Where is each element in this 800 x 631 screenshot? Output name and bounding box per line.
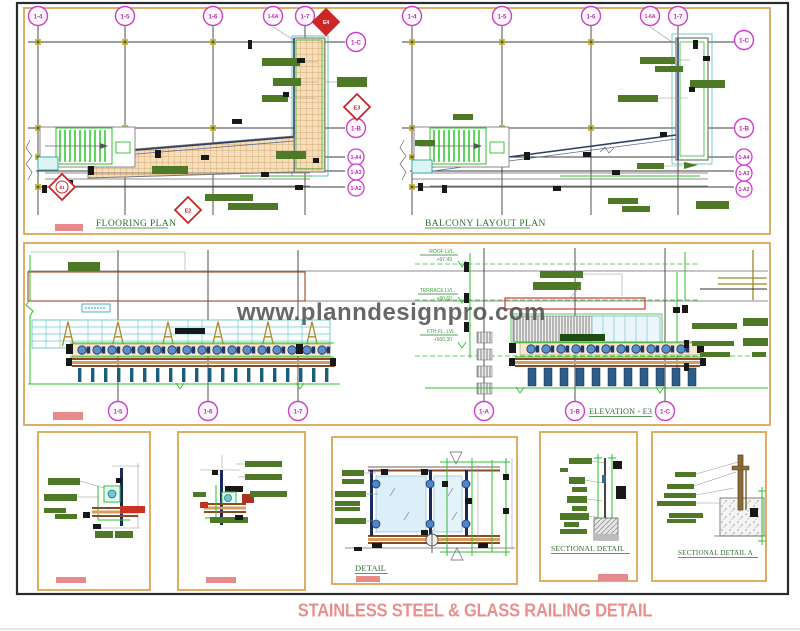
svg-text:1-6: 1-6 — [204, 408, 214, 415]
detail-panel-4: SECTIONAL DETAIL — [551, 454, 630, 581]
svg-text:+600.30: +600.30 — [434, 337, 452, 343]
balcony-layout-plan: 1-4 1-5 1-6 1-6A 1-7 1-C 1-B 1-A4 1-A3 1… — [400, 7, 754, 230]
grid-bubbles-top: 1-4 1-5 1-6 1-6A 1-7 — [29, 7, 315, 26]
svg-text:E1: E1 — [59, 185, 65, 190]
svg-text:E4: E4 — [323, 20, 329, 26]
grid-bubble-label: 1-4 — [34, 13, 44, 20]
sectional-detail-title: SECTIONAL DETAIL — [551, 544, 625, 553]
svg-text:1-6: 1-6 — [587, 13, 597, 20]
flooring-plan: 1-4 1-5 1-6 1-6A 1-7 E4 1-C 1-B 1-A4 1-A… — [26, 7, 370, 232]
elevation-drawing: ROOF LVL. +97.49 TERRACE LVL. +90.60 6TH… — [26, 248, 768, 421]
svg-text:+97.49: +97.49 — [437, 257, 453, 263]
detail-panel-2 — [193, 455, 287, 583]
grid-bubbles-top: 1-4 1-5 1-6 1-6A 1-7 — [403, 7, 688, 26]
svg-text:1-6A: 1-6A — [645, 14, 656, 20]
svg-text:1-7: 1-7 — [674, 13, 684, 20]
flooring-plan-title: FLOORING PLAN — [96, 219, 176, 229]
svg-text:1-C: 1-C — [351, 39, 362, 46]
scale-block — [356, 576, 380, 582]
elevation-marker-e3: E3 — [344, 94, 370, 120]
elevation-marker-e1: E1 — [49, 174, 75, 200]
cad-drawing-canvas: 1-4 1-5 1-6 1-6A 1-7 E4 1-C 1-B 1-A4 1-A… — [0, 0, 800, 631]
svg-text:1-C: 1-C — [660, 408, 671, 415]
elevation-bubbles: 1-5 1-6 1-7 1-A 1-B 1-C ELEVATION - E3 — [109, 402, 675, 421]
svg-text:1-4: 1-4 — [408, 13, 418, 20]
detail-caption-smudge — [56, 577, 86, 583]
detail-title: DETAIL — [355, 563, 386, 573]
svg-text:1-A: 1-A — [479, 408, 490, 415]
elevation-title: ELEVATION - E3 — [589, 407, 652, 416]
elevation-marker-e2: E2 — [175, 197, 201, 223]
svg-text:6TH FL. LVL: 6TH FL. LVL — [427, 329, 455, 335]
elevation-marker-e4: E4 — [313, 9, 339, 35]
svg-text:1-B: 1-B — [570, 408, 581, 415]
drawing-sheet: 1-4 1-5 1-6 1-6A 1-7 E4 1-C 1-B 1-A4 1-A… — [0, 0, 800, 631]
svg-text:1-5: 1-5 — [114, 408, 124, 415]
svg-text:1-B: 1-B — [351, 125, 362, 132]
grid-bubble-label: 1-6 — [209, 13, 219, 20]
grid-bubbles-right: 1-C 1-B 1-A4 1-A3 1-A2 — [735, 31, 754, 198]
level-roof: ROOF LVL. +97.49 — [415, 249, 700, 267]
detail-panel-1 — [44, 463, 145, 583]
detail-panel-5: SECTIONAL DETAIL A — [657, 455, 766, 558]
grid-bubble-label: 1-6A — [268, 14, 279, 20]
svg-text:1-B: 1-B — [739, 125, 750, 132]
svg-text:1-5: 1-5 — [498, 13, 508, 20]
svg-text:E2: E2 — [185, 208, 192, 214]
sectional-detail-a-title: SECTIONAL DETAIL A — [678, 549, 753, 557]
svg-text:ROOF LVL.: ROOF LVL. — [429, 249, 455, 255]
svg-text:1-A2: 1-A2 — [739, 187, 750, 193]
svg-text:TERRACE LVL.: TERRACE LVL. — [420, 288, 455, 294]
svg-text:1-C: 1-C — [739, 37, 750, 44]
scale-block — [55, 224, 83, 231]
svg-text:E3: E3 — [354, 105, 361, 111]
scale-block — [598, 574, 628, 581]
grid-bubble-label: 1-5 — [121, 13, 131, 20]
svg-text:1-A4: 1-A4 — [739, 155, 750, 161]
svg-text:1-7: 1-7 — [294, 408, 304, 415]
balcony-plan-title: BALCONY LAYOUT PLAN — [425, 219, 546, 229]
detail-caption-smudge — [206, 577, 236, 583]
grid-bubble-label: 1-7 — [301, 13, 311, 20]
svg-text:1-A4: 1-A4 — [351, 155, 362, 161]
elevation-left — [26, 250, 340, 420]
sheet-title: STAINLESS STEEL & GLASS RAILING DETAIL — [295, 601, 655, 622]
detail-panel-3: DETAIL — [335, 452, 515, 582]
svg-text:1-A2: 1-A2 — [351, 186, 362, 192]
svg-text:+90.60: +90.60 — [437, 296, 453, 302]
svg-text:1-A3: 1-A3 — [739, 171, 750, 177]
svg-text:1-A3: 1-A3 — [351, 170, 362, 176]
scale-block — [53, 412, 83, 420]
